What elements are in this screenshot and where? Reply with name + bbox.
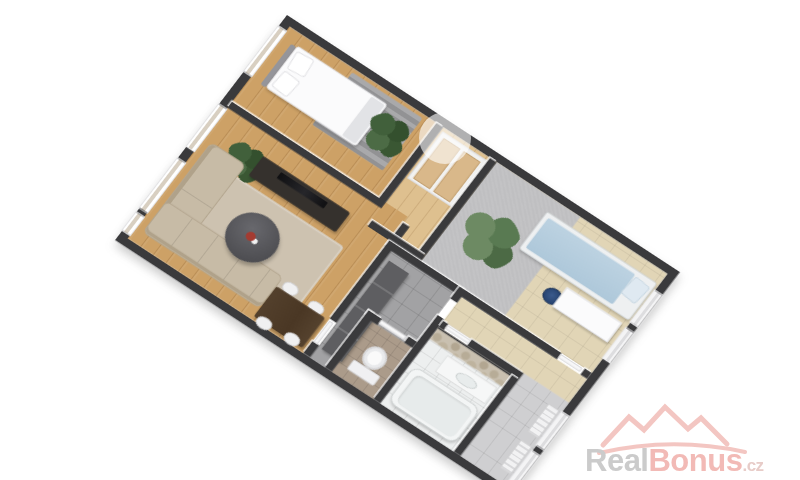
floorplan-screenshot: RealBonus.cz	[0, 0, 800, 480]
faint-circle-watermark	[419, 112, 471, 164]
brand-text: RealBonus.cz	[585, 445, 764, 476]
table-decor	[244, 230, 258, 243]
brand-tld: .cz	[742, 456, 763, 475]
brand-bonus: Bonus	[648, 443, 742, 478]
realbonus-watermark: RealBonus.cz	[583, 403, 798, 479]
brand-real: Real	[585, 443, 648, 478]
